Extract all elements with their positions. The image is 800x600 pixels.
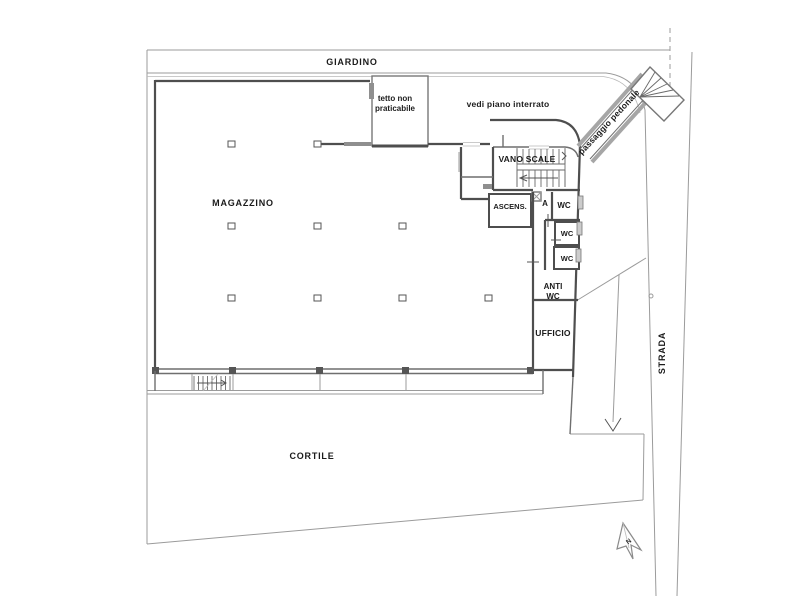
label-anti-1: ANTI [544,282,563,291]
window-gap [463,140,480,148]
road-right-line [677,52,692,596]
building-walls [155,80,580,377]
column-marker [228,223,235,229]
label-vano-scale: VANO SCALE [498,154,555,164]
wall-pier [402,367,409,374]
south-wall-lines [155,369,533,374]
column-marker [228,295,235,301]
label-wc-small: WC [561,254,574,263]
annex-door [483,184,492,189]
site-bottom-line [147,500,643,544]
floor-plan-drawing: N GIARDINO tetto non praticabile vedi pi… [0,0,800,600]
floor-plan-page: N GIARDINO tetto non praticabile vedi pi… [0,0,800,600]
label-vano-a: A [542,199,548,208]
column-marker [399,295,406,301]
label-giardino: GIARDINO [326,57,377,67]
east-window [576,249,581,262]
wall-pier [316,367,323,374]
labels: GIARDINO tetto non praticabile vedi pian… [212,57,667,461]
ramp-direction-arrow-shaft [613,275,619,422]
cortile-side-wall [570,377,573,434]
roof-room-door [369,83,374,99]
label-ascensore: ASCENS. [493,202,526,211]
cortile-right-boundary [570,434,644,500]
label-tetto-1: tetto non [378,94,412,103]
ramp-edge-line [576,258,646,301]
stair-arrow-down [520,175,558,181]
label-tetto-2: praticabile [375,104,416,113]
column-marker [314,295,321,301]
label-strada: STRADA [657,332,667,374]
label-cortile: CORTILE [289,451,334,461]
column-marker [399,223,406,229]
east-window [577,222,582,235]
label-ufficio: UFFICIO [535,328,571,338]
column-marker [314,223,321,229]
wall-pier [527,367,534,374]
label-wc-big: WC [557,201,571,210]
wall-pier [229,367,236,374]
label-anti-2: WC [546,292,560,301]
entry-annex-walls [461,147,493,199]
ramp-area [576,258,646,431]
label-magazzino: MAGAZZINO [212,198,274,208]
column-marker [228,141,235,147]
passage-edge-outer-grey [578,74,642,146]
east-window [578,196,583,209]
pedestrian-passage [578,67,684,162]
column-marker [485,295,492,301]
label-wc-mid: WC [561,229,574,238]
terrace-bottom-wall [147,391,543,395]
east-wall-windows [576,196,583,262]
column-marker [314,141,321,147]
partial-wall-grey-segment [344,142,372,146]
columns-grid [228,141,492,301]
north-arrow: N [617,523,641,559]
label-vedi-piano: vedi piano interrato [467,99,550,109]
